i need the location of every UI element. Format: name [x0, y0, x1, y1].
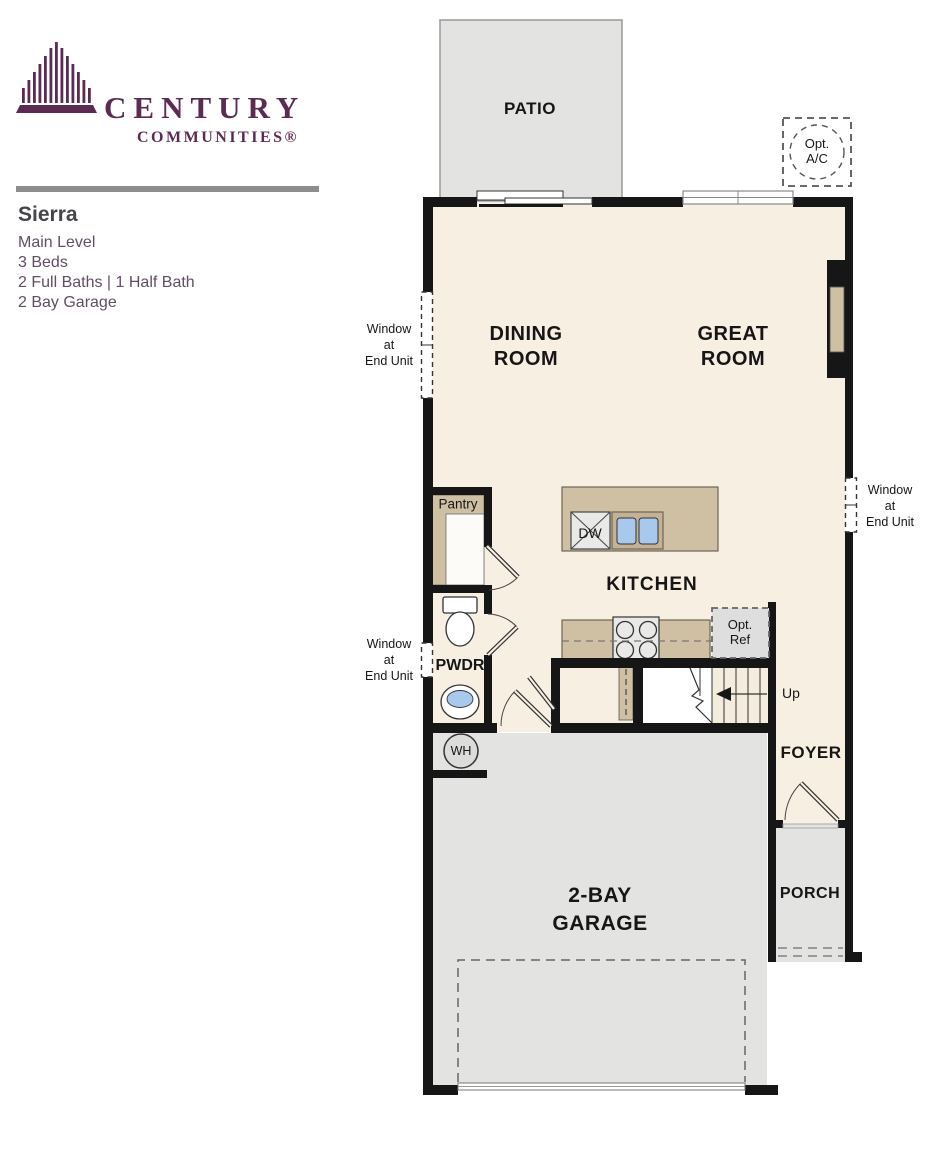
toilet [443, 597, 477, 646]
window-end-unit-label-pwdr: Window at End Unit [365, 636, 413, 684]
pedestal-sink [441, 685, 479, 719]
window-end-unit-label-great: Window at End Unit [866, 482, 914, 530]
opt-ac-label: Opt. A/C [805, 136, 830, 166]
opt-ref-label: Opt. Ref [728, 617, 753, 647]
garage-label: 2-BAY GARAGE [552, 882, 647, 938]
dishwasher-label: DW [578, 525, 601, 541]
sink-basin-right [639, 518, 658, 544]
sink-basin-left [617, 518, 636, 544]
stairs [643, 663, 767, 723]
great-room-rear-window [683, 191, 793, 204]
pwdr-label: PWDR [436, 657, 485, 675]
mechanical-chase [619, 666, 633, 720]
floorplan-drawing [0, 0, 943, 1150]
great-room-label: GREAT ROOM [697, 322, 768, 372]
porch-label: PORCH [780, 885, 840, 903]
water-heater-label: WH [451, 744, 472, 758]
foyer-label: FOYER [780, 743, 841, 763]
patio-label: PATIO [504, 99, 556, 119]
dining-room-label: DINING ROOM [490, 322, 563, 372]
pantry-label: Pantry [438, 497, 477, 512]
floorplan-page: CENTURY COMMUNITIES® Sierra Main Level 3… [0, 0, 943, 1150]
kitchen-island [562, 487, 718, 551]
front-door-threshold [783, 824, 838, 828]
window-pwdr [422, 643, 433, 677]
fireplace-insert [830, 287, 844, 352]
window-end-unit-label-dining: Window at End Unit [365, 321, 413, 369]
up-label: Up [782, 685, 800, 701]
garage-door [458, 1083, 745, 1090]
kitchen-label: KITCHEN [606, 574, 697, 596]
